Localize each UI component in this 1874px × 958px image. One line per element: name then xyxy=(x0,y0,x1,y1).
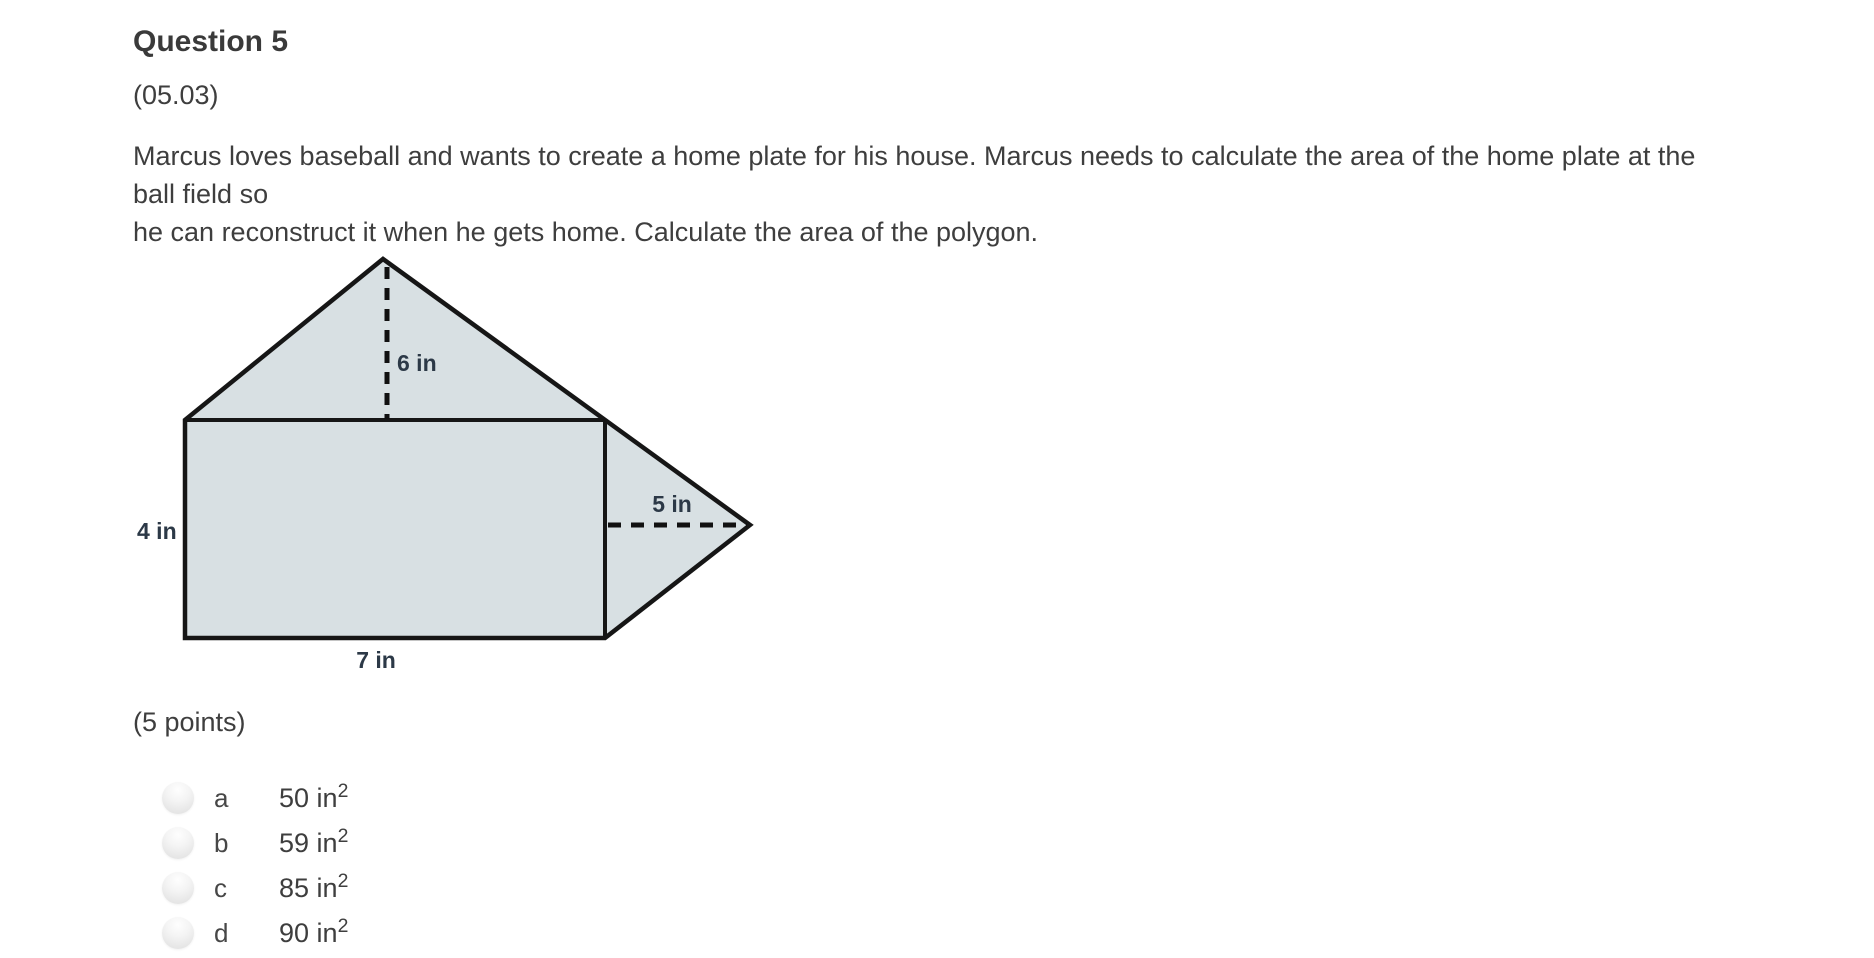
label-7in: 7 in xyxy=(356,647,396,673)
radio-button-a[interactable] xyxy=(162,782,194,814)
polygon-outline xyxy=(185,259,750,638)
option-letter-d: d xyxy=(214,918,279,949)
answer-options: a 50 in2 b 59 in2 c 85 in2 d 90 in2 xyxy=(162,782,1874,949)
question-code: (05.03) xyxy=(133,80,1874,111)
radio-button-b[interactable] xyxy=(162,827,194,859)
label-4in: 4 in xyxy=(137,518,177,544)
prompt-line-1: Marcus loves baseball and wants to creat… xyxy=(133,137,1733,213)
option-text-c: 85 in xyxy=(279,873,338,903)
points-label: (5 points) xyxy=(133,705,1874,739)
prompt-line-2: he can reconstruct it when he gets home.… xyxy=(133,213,1733,251)
option-value-c: 85 in2 xyxy=(279,873,348,904)
answer-option-a[interactable]: a 50 in2 xyxy=(162,782,1874,814)
option-letter-a: a xyxy=(214,783,279,814)
option-value-a: 50 in2 xyxy=(279,783,348,814)
question-prompt: Marcus loves baseball and wants to creat… xyxy=(133,137,1733,251)
label-6in: 6 in xyxy=(397,350,437,376)
question-title: Question 5 xyxy=(133,24,1874,59)
answer-option-c[interactable]: c 85 in2 xyxy=(162,872,1874,904)
label-5in: 5 in xyxy=(652,491,692,517)
polygon-figure: 6 in 5 in 4 in 7 in xyxy=(125,253,785,693)
option-text-a: 50 in xyxy=(279,783,338,813)
answer-option-b[interactable]: b 59 in2 xyxy=(162,827,1874,859)
option-letter-c: c xyxy=(214,873,279,904)
quiz-page: Question 5 (05.03) Marcus loves baseball… xyxy=(0,0,1874,958)
option-exponent-d: 2 xyxy=(338,915,349,937)
option-value-b: 59 in2 xyxy=(279,828,348,859)
option-exponent-b: 2 xyxy=(338,825,349,847)
option-text-d: 90 in xyxy=(279,918,338,948)
radio-button-d[interactable] xyxy=(162,917,194,949)
radio-button-c[interactable] xyxy=(162,872,194,904)
option-exponent-c: 2 xyxy=(338,870,349,892)
option-letter-b: b xyxy=(214,828,279,859)
option-text-b: 59 in xyxy=(279,828,338,858)
answer-option-d[interactable]: d 90 in2 xyxy=(162,917,1874,949)
option-exponent-a: 2 xyxy=(338,780,349,802)
option-value-d: 90 in2 xyxy=(279,918,348,949)
